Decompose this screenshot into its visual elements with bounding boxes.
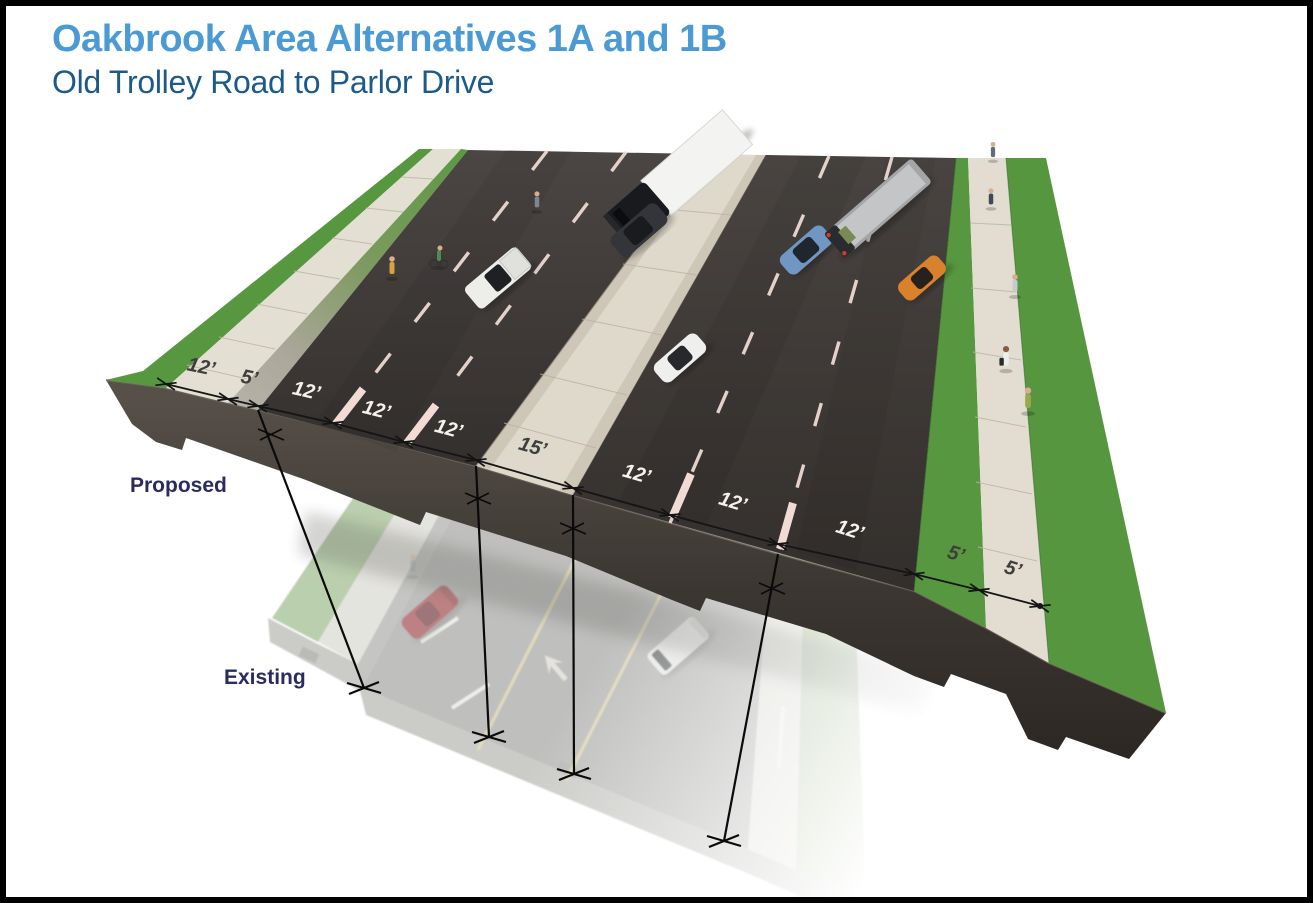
existing-label: Existing (224, 666, 306, 689)
dimension-end-dot (1037, 603, 1043, 609)
infographic-page: Oakbrook Area Alternatives 1A and 1B Old… (0, 0, 1313, 903)
roadway-rendering: 12’ 5’ 12’ 12’ 12’ 15’ 12’ 12’ 12’ 5’ 5’… (6, 6, 1313, 903)
proposed-label: Proposed (130, 474, 227, 497)
